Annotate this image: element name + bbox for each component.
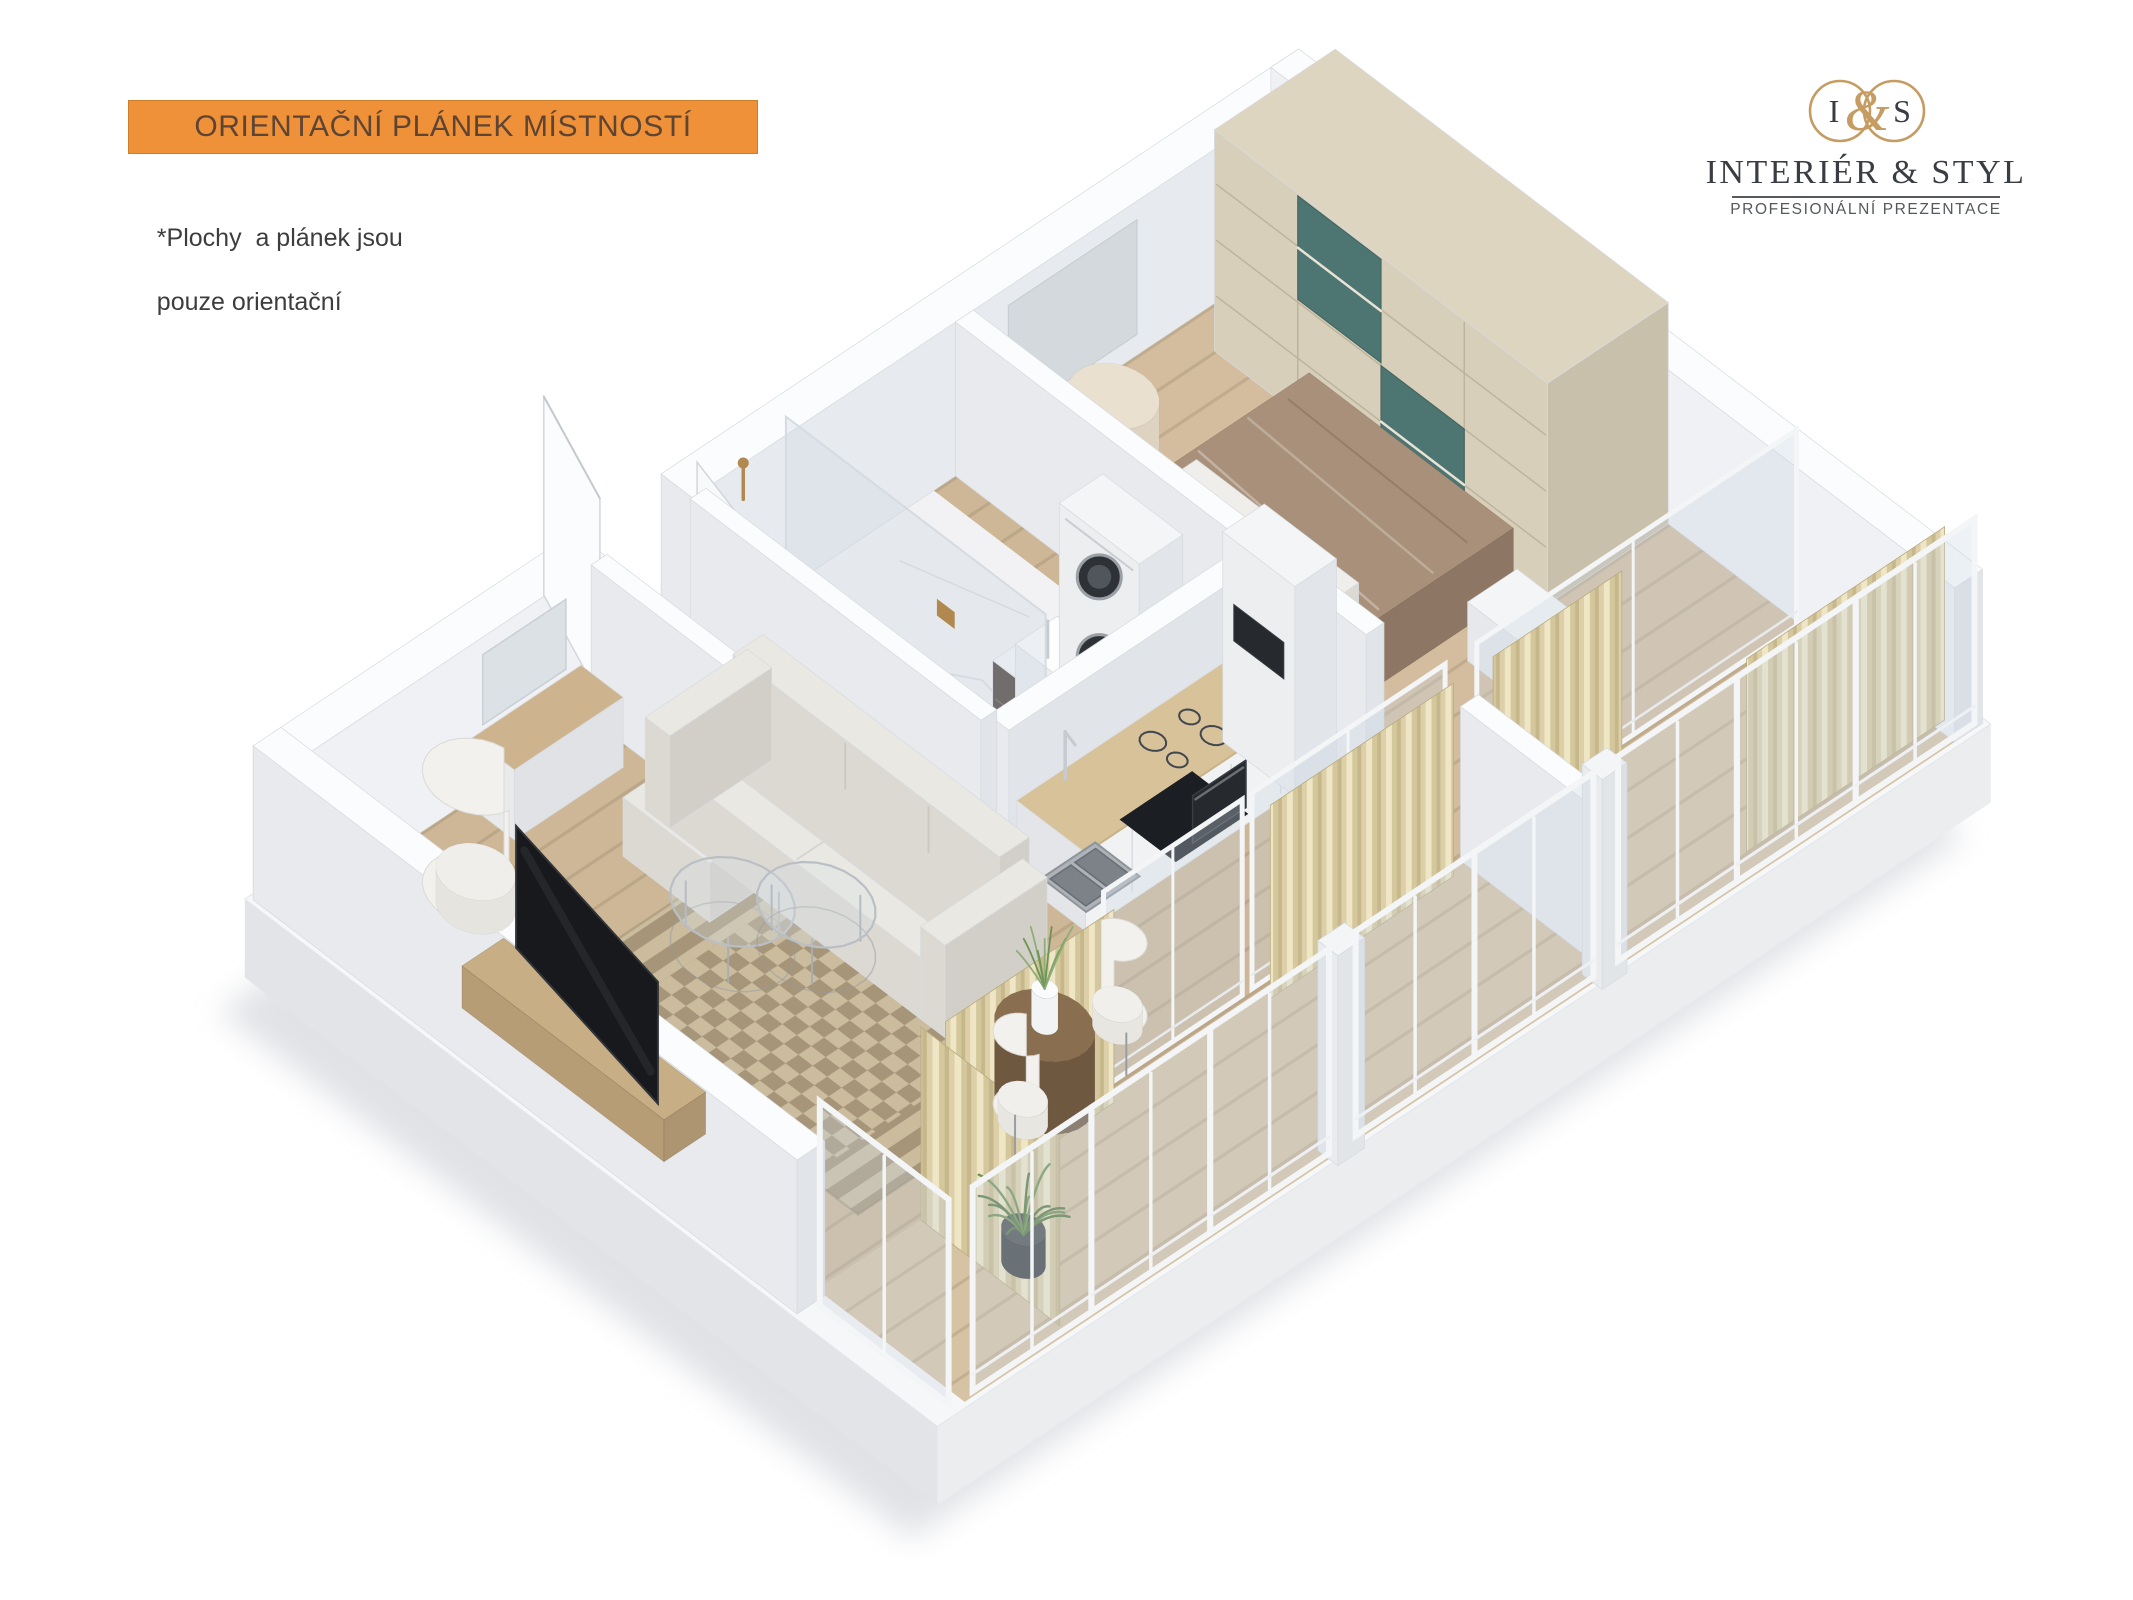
page: ORIENTAČNÍ PLÁNEK MÍSTNOSTÍ *Plochy a pl… — [0, 0, 2133, 1600]
title-banner: ORIENTAČNÍ PLÁNEK MÍSTNOSTÍ — [128, 100, 758, 154]
disclaimer-line1: *Plochy a plánek jsou — [157, 224, 403, 252]
logo-letter-i: I — [1829, 93, 1840, 129]
logo-monogram: & I S — [1746, 66, 1986, 158]
logo-divider — [1732, 196, 2000, 198]
logo-ampersand: & — [1844, 78, 1889, 143]
logo-subtitle: PROFESIONÁLNÍ PREZENTACE — [1692, 201, 2040, 219]
logo-letter-s: S — [1893, 93, 1911, 129]
disclaimer-note: *Plochy a plánek jsou pouze orientační — [129, 190, 403, 350]
disclaimer-line2: pouze orientační — [157, 288, 342, 316]
logo-title: INTERIÉR & STYL — [1692, 154, 2040, 192]
title-banner-label: ORIENTAČNÍ PLÁNEK MÍSTNOSTÍ — [194, 110, 691, 144]
company-logo: & I S INTERIÉR & STYL PROFESIONÁLNÍ PREZ… — [1692, 66, 2040, 219]
